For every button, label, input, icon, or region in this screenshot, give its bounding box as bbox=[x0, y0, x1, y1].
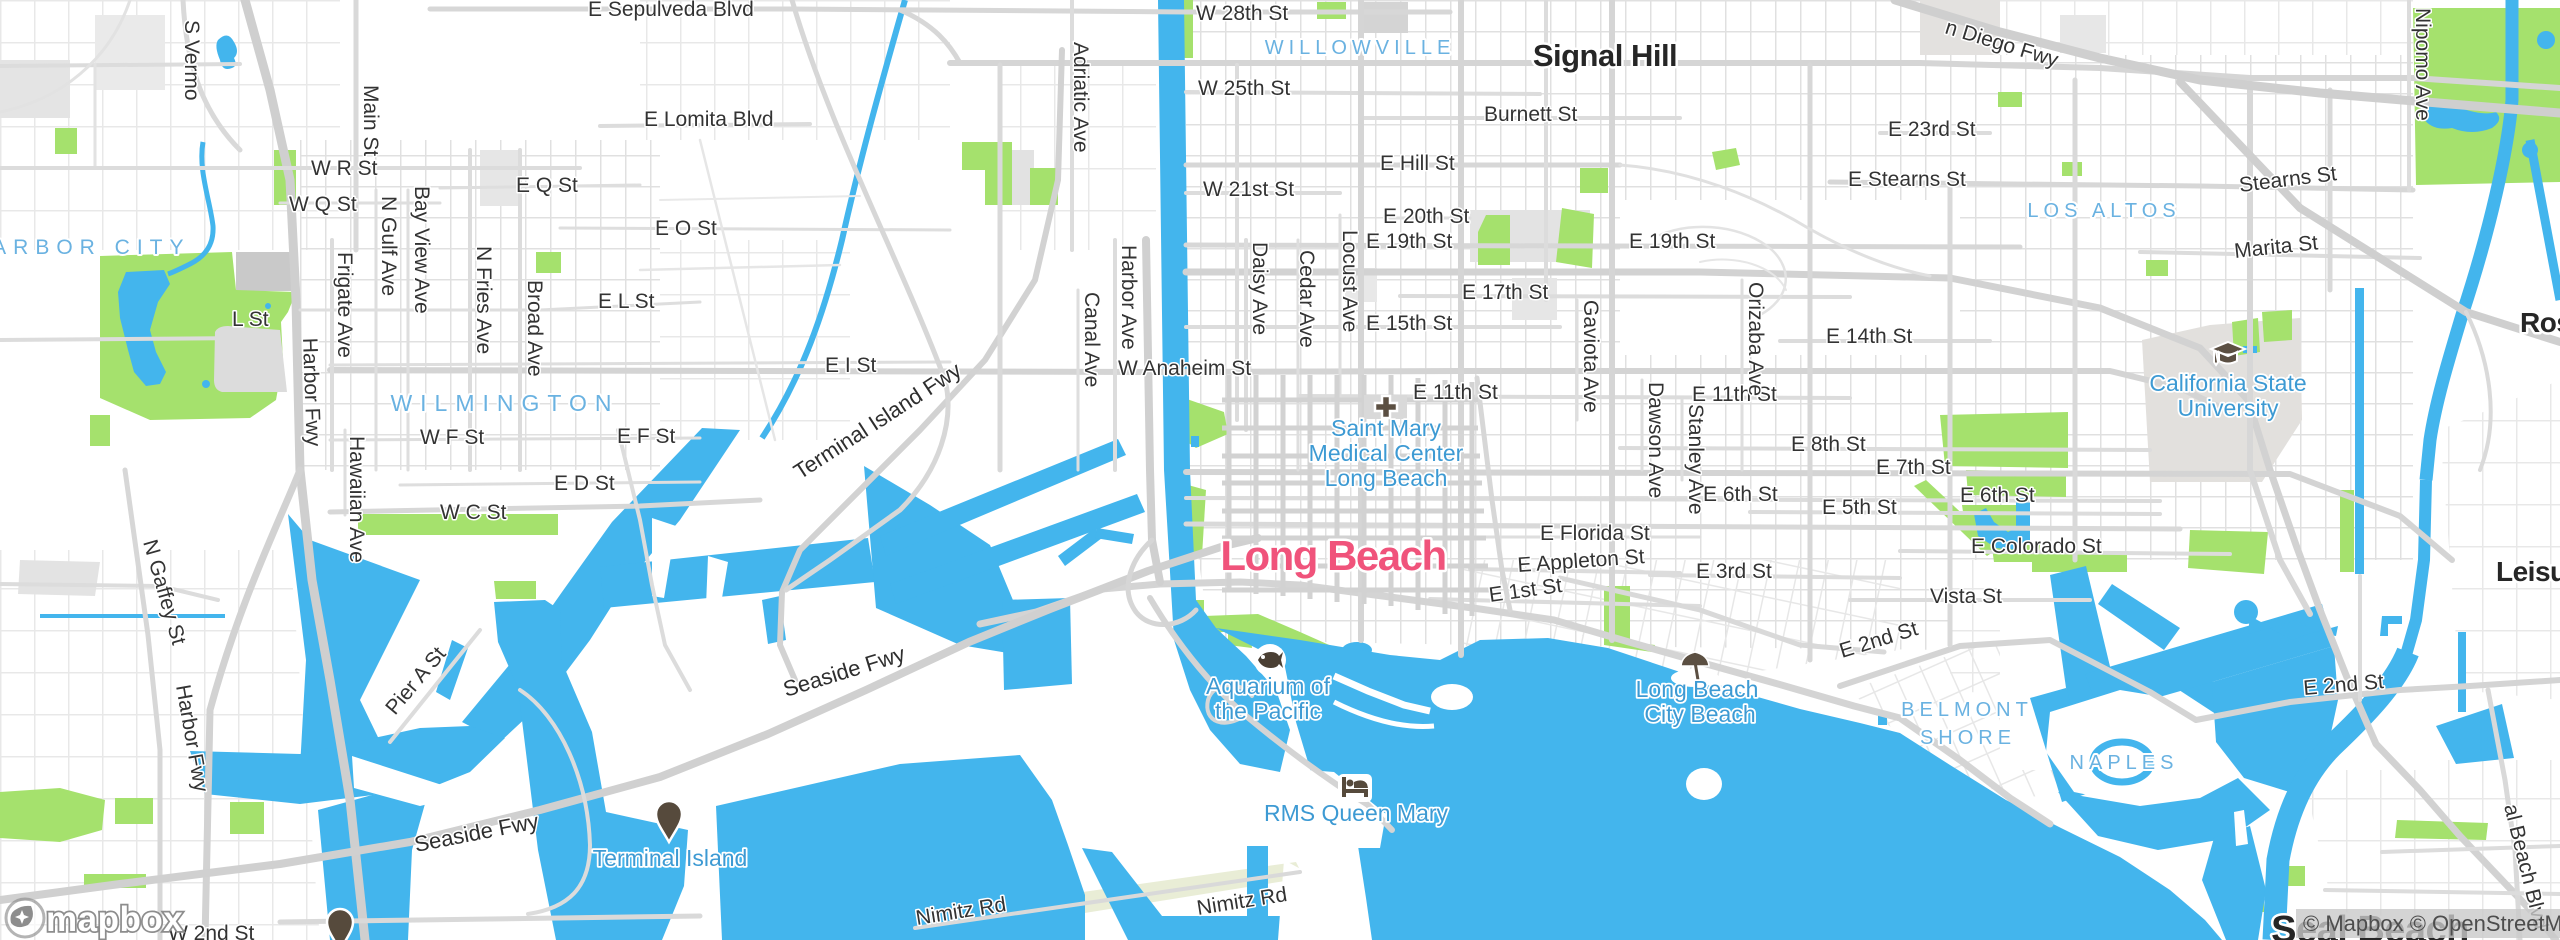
svg-text:Hawaiian Ave: Hawaiian Ave bbox=[345, 436, 368, 563]
svg-text:E 20th St: E 20th St bbox=[1383, 205, 1470, 228]
svg-text:the Pacific: the Pacific bbox=[1215, 698, 1321, 724]
svg-text:California State: California State bbox=[2149, 370, 2306, 396]
svg-text:SHORE: SHORE bbox=[1920, 727, 2016, 749]
svg-text:E L St: E L St bbox=[598, 290, 655, 313]
svg-text:BELMONT: BELMONT bbox=[1901, 699, 2033, 721]
svg-text:City Beach: City Beach bbox=[1644, 701, 1755, 727]
svg-text:LOS ALTOS: LOS ALTOS bbox=[2027, 200, 2180, 222]
svg-text:W Anaheim St: W Anaheim St bbox=[1118, 357, 1251, 380]
svg-text:E 6th St: E 6th St bbox=[1703, 483, 1778, 506]
svg-text:W 21st St: W 21st St bbox=[1203, 178, 1294, 201]
svg-text:Burnett St: Burnett St bbox=[1484, 103, 1578, 126]
svg-text:E I St: E I St bbox=[825, 354, 877, 377]
svg-text:E 5th St: E 5th St bbox=[1822, 496, 1897, 519]
svg-text:Nipomo Ave: Nipomo Ave bbox=[2411, 8, 2434, 121]
svg-text:S Vermo: S Vermo bbox=[180, 20, 203, 101]
svg-text:N Fries Ave: N Fries Ave bbox=[472, 246, 495, 354]
svg-text:Daisy Ave: Daisy Ave bbox=[1248, 242, 1271, 335]
svg-text:E Colorado St: E Colorado St bbox=[1971, 535, 2102, 558]
svg-text:E Sepulveda Blvd: E Sepulveda Blvd bbox=[588, 0, 754, 21]
svg-text:Broad Ave: Broad Ave bbox=[523, 280, 546, 377]
svg-text:Vista St: Vista St bbox=[1930, 585, 2002, 608]
svg-text:Saint Mary: Saint Mary bbox=[1331, 415, 1441, 441]
svg-text:RMS Queen Mary: RMS Queen Mary bbox=[1264, 800, 1449, 826]
svg-text:E 19th St: E 19th St bbox=[1366, 230, 1453, 253]
svg-text:Rossmoor: Rossmoor bbox=[2520, 307, 2560, 338]
svg-text:Medical Center: Medical Center bbox=[1309, 440, 1464, 466]
svg-text:Aquarium of: Aquarium of bbox=[1206, 673, 1331, 699]
svg-text:E 19th St: E 19th St bbox=[1629, 230, 1716, 253]
svg-text:E 15th St: E 15th St bbox=[1366, 312, 1453, 335]
svg-text:W 28th St: W 28th St bbox=[1196, 2, 1288, 25]
svg-text:Long Beach: Long Beach bbox=[1325, 465, 1448, 491]
svg-text:W R St: W R St bbox=[311, 157, 378, 180]
svg-text:University: University bbox=[2178, 395, 2279, 421]
svg-text:W F St: W F St bbox=[420, 426, 484, 449]
svg-text:E Hill St: E Hill St bbox=[1380, 152, 1455, 175]
svg-text:Locust Ave: Locust Ave bbox=[1338, 230, 1361, 332]
svg-text:E 6th St: E 6th St bbox=[1960, 484, 2035, 507]
svg-text:E Stearns St: E Stearns St bbox=[1848, 168, 1966, 191]
svg-text:Canal Ave: Canal Ave bbox=[1080, 292, 1103, 387]
svg-text:E 14th St: E 14th St bbox=[1826, 325, 1913, 348]
svg-text:Main St: Main St bbox=[359, 85, 382, 156]
svg-text:E 3rd St: E 3rd St bbox=[1696, 560, 1772, 583]
svg-text:Cedar Ave: Cedar Ave bbox=[1295, 250, 1318, 348]
svg-text:E Florida St: E Florida St bbox=[1540, 522, 1650, 545]
svg-text:© Mapbox © OpenStreetMap: © Mapbox © OpenStreetMap bbox=[2303, 911, 2560, 936]
svg-text:HARBOR CITY: HARBOR CITY bbox=[0, 236, 191, 259]
svg-text:Frigate Ave: Frigate Ave bbox=[333, 252, 356, 358]
svg-text:mapbox: mapbox bbox=[46, 900, 183, 939]
svg-text:Harbor Ave: Harbor Ave bbox=[1117, 245, 1140, 350]
svg-text:WILMINGTON: WILMINGTON bbox=[390, 390, 619, 416]
svg-text:Bay View Ave: Bay View Ave bbox=[410, 186, 433, 314]
svg-text:W C St: W C St bbox=[440, 501, 507, 524]
svg-text:E 11th St: E 11th St bbox=[1413, 381, 1498, 404]
svg-text:E D St: E D St bbox=[554, 472, 615, 495]
svg-text:Signal Hill: Signal Hill bbox=[1533, 38, 1677, 73]
svg-text:Terminal Island: Terminal Island bbox=[593, 845, 748, 871]
svg-text:Stanley Ave: Stanley Ave bbox=[1684, 404, 1707, 515]
svg-text:Orizaba Ave: Orizaba Ave bbox=[1744, 282, 1767, 396]
svg-text:Leisure: Leisure bbox=[2496, 556, 2560, 587]
svg-text:Gaviota Ave: Gaviota Ave bbox=[1579, 300, 1602, 413]
svg-text:E Q St: E Q St bbox=[516, 174, 578, 197]
svg-text:W Q St: W Q St bbox=[289, 193, 357, 216]
svg-text:E F St: E F St bbox=[617, 425, 676, 448]
svg-text:NAPLES: NAPLES bbox=[2070, 752, 2179, 774]
svg-text:Long Beach: Long Beach bbox=[1220, 532, 1445, 579]
svg-text:E 23rd St: E 23rd St bbox=[1888, 118, 1976, 141]
svg-text:E 8th St: E 8th St bbox=[1791, 433, 1866, 456]
svg-text:WILLOWVILLE: WILLOWVILLE bbox=[1265, 37, 1456, 59]
svg-text:L St: L St bbox=[232, 308, 269, 331]
svg-text:Long Beach: Long Beach bbox=[1636, 676, 1759, 702]
svg-text:E 17th St: E 17th St bbox=[1462, 281, 1549, 304]
svg-text:Dawson Ave: Dawson Ave bbox=[1644, 382, 1667, 498]
svg-text:E Lomita Blvd: E Lomita Blvd bbox=[644, 108, 774, 131]
svg-text:Adriatic Ave: Adriatic Ave bbox=[1069, 42, 1092, 153]
svg-text:Harbor Fwy: Harbor Fwy bbox=[298, 337, 325, 447]
svg-text:E 7th St: E 7th St bbox=[1876, 456, 1951, 479]
svg-text:N Gulf Ave: N Gulf Ave bbox=[377, 196, 400, 296]
svg-text:E O St: E O St bbox=[655, 217, 717, 240]
svg-text:W 25th St: W 25th St bbox=[1198, 77, 1290, 100]
